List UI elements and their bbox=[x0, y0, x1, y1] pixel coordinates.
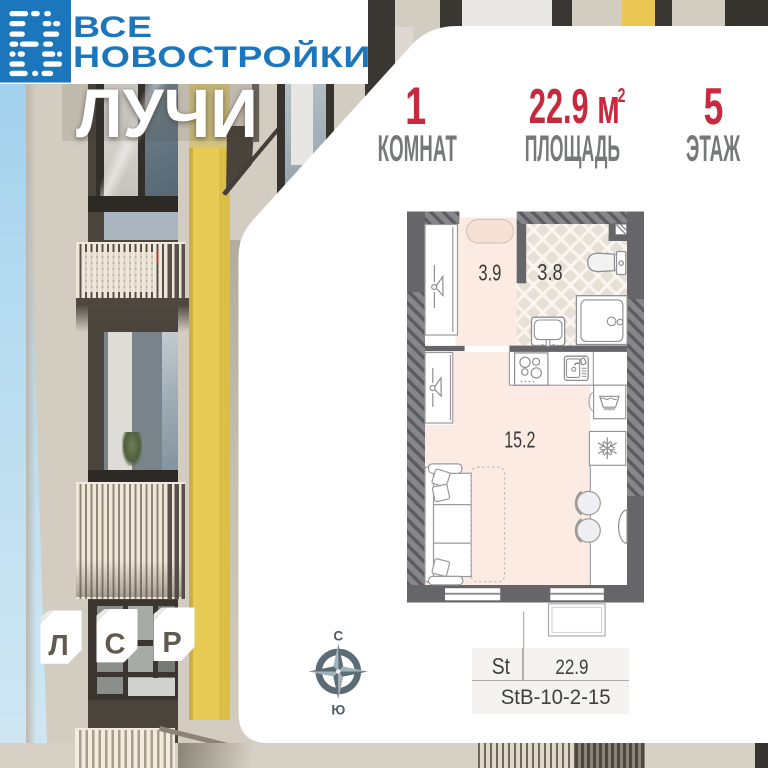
svg-text:Ю: Ю bbox=[331, 703, 345, 718]
svg-text:С: С bbox=[333, 629, 343, 644]
